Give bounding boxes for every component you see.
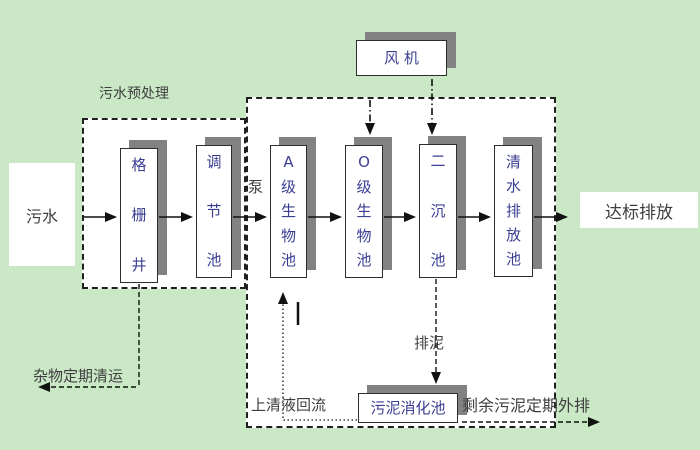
pretreatment-label: 污水预处理	[99, 87, 169, 102]
a-bio-tank-box: A级生物池	[270, 145, 307, 278]
grid-well-label: 格栅井	[120, 148, 158, 283]
secondary-settling-tank-box: 二沉池	[419, 144, 457, 278]
wastewater-process-flow-diagram: 污水 达标排放 格栅井 调节池 A级生物池 O级生物池 二沉池 清水排放池 风 …	[0, 0, 700, 450]
grid-well-box: 格栅井	[120, 148, 158, 283]
sludge-digestion-tank-label: 污泥消化池	[358, 393, 458, 423]
o-bio-tank-box: O级生物池	[345, 145, 383, 278]
sludge-digestion-tank-box: 污泥消化池	[358, 393, 458, 423]
standard-discharge-box: 达标排放	[580, 192, 698, 228]
a-bio-tank-label: A级生物池	[270, 145, 307, 278]
sludge-discharge-label: 排泥	[414, 335, 444, 352]
o-bio-tank-label: O级生物池	[345, 145, 383, 278]
blower-box: 风 机	[356, 40, 447, 76]
debris-removal-label: 杂物定期清运	[33, 368, 123, 385]
regulating-tank-label: 调节池	[196, 145, 232, 278]
excess-sludge-label: 剩余污泥定期外排	[462, 397, 590, 415]
pump-label: 泵	[248, 179, 263, 196]
blower-label: 风 机	[356, 40, 447, 76]
sewage-source-box: 污水	[9, 163, 75, 266]
clear-water-tank-label: 清水排放池	[494, 145, 533, 277]
clear-water-tank-box: 清水排放池	[494, 145, 533, 277]
secondary-settling-tank-label: 二沉池	[419, 144, 457, 278]
supernatant-return-label: 上清液回流	[251, 397, 326, 414]
regulating-tank-box: 调节池	[196, 145, 232, 278]
